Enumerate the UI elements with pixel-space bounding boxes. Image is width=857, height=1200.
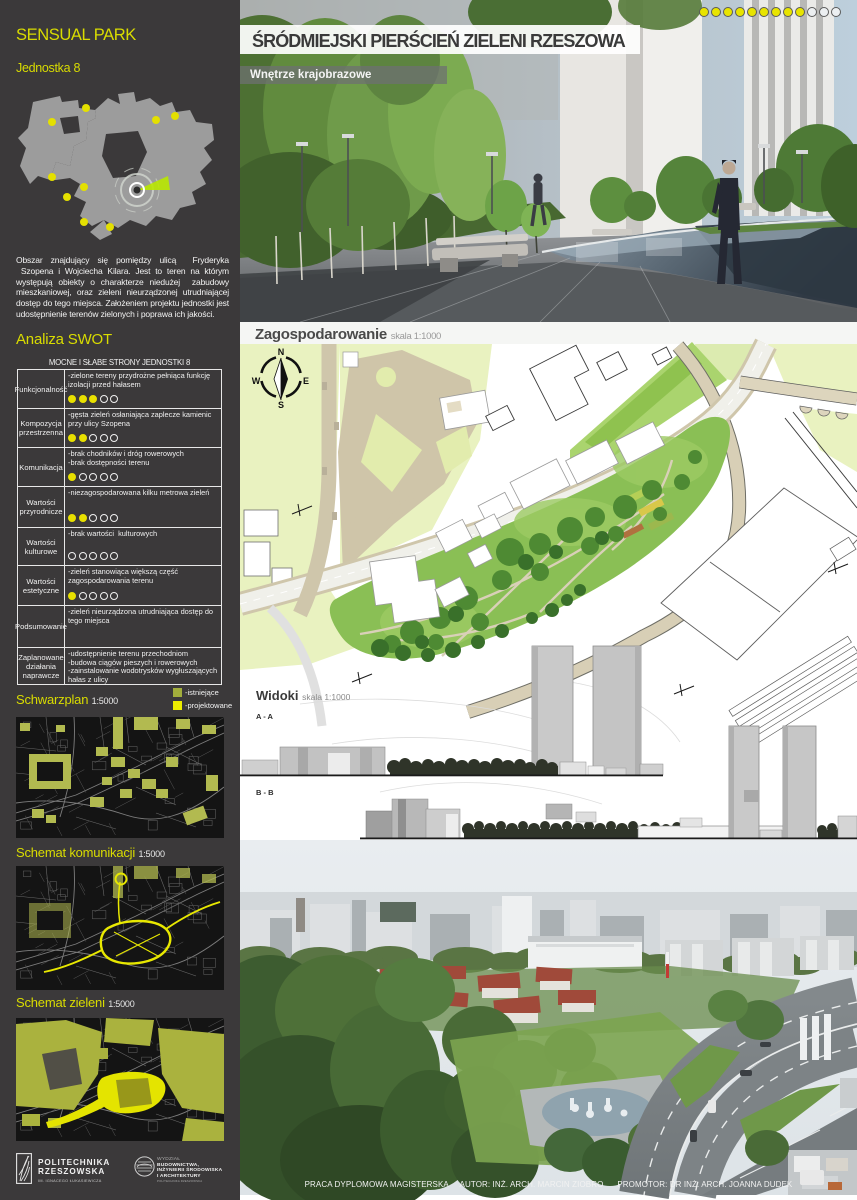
svg-text:W: W	[252, 376, 261, 386]
svg-text:N: N	[278, 347, 285, 357]
svg-text:S: S	[278, 400, 284, 410]
svg-text:E: E	[303, 376, 309, 386]
